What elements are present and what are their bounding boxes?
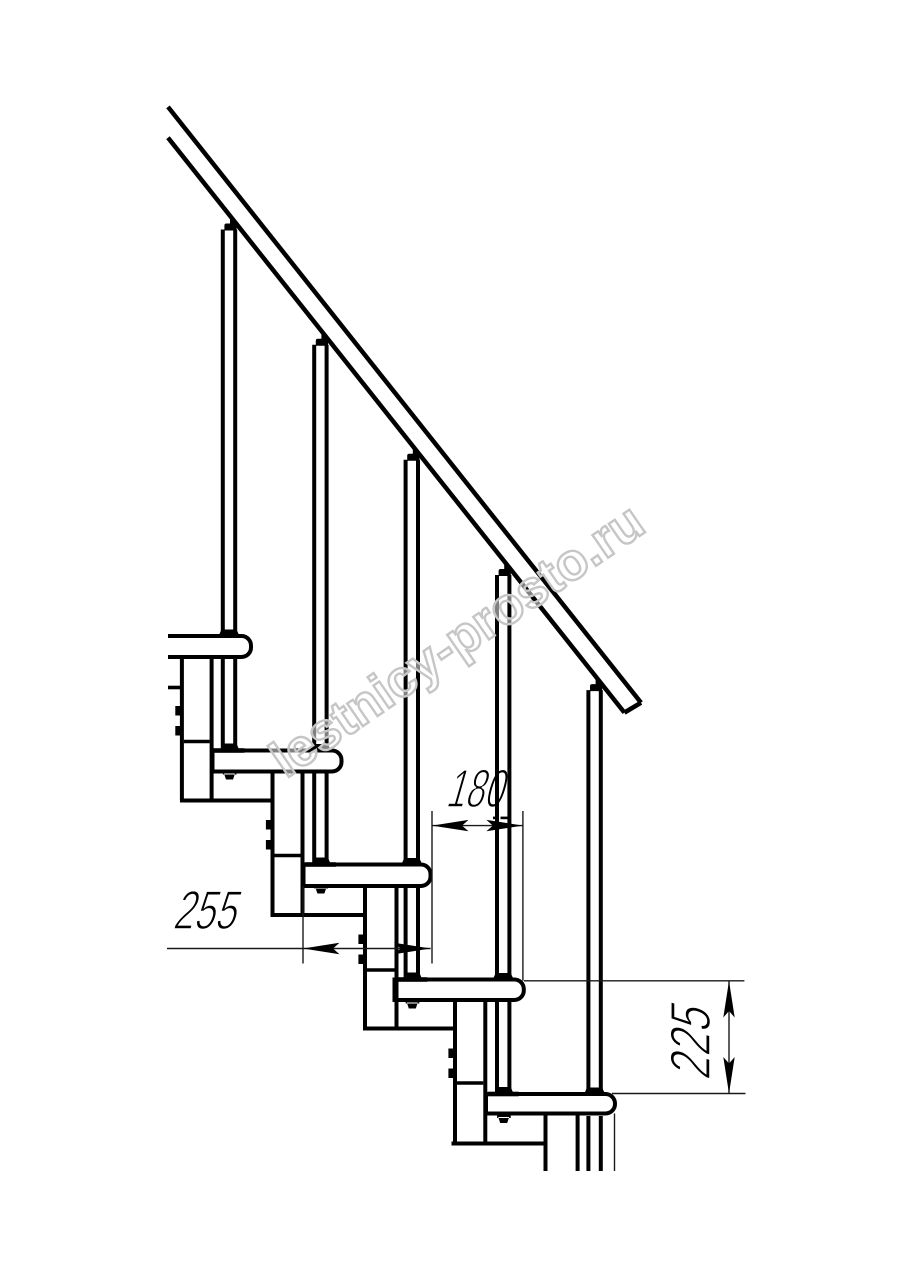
svg-text:225: 225 xyxy=(658,995,722,1085)
svg-text:255: 255 xyxy=(168,880,248,941)
svg-text:lestnicy-prosto.ru: lestnicy-prosto.ru xyxy=(260,492,655,789)
svg-text:180: 180 xyxy=(442,758,516,818)
